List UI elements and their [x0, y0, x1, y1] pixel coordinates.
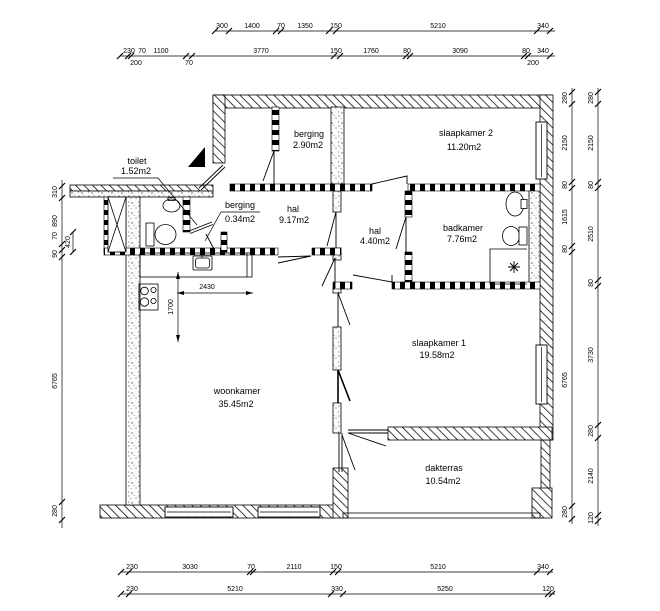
room-area-dakterras: 10.54m2 — [425, 476, 460, 486]
wall-toiletblock-top-inner — [70, 191, 213, 197]
dim-text: 6765 — [562, 372, 569, 388]
dim-text: 340 — [537, 23, 549, 30]
dim-text: 1350 — [297, 23, 313, 30]
dim-text: 80 — [403, 48, 411, 55]
dim-text: 890 — [52, 215, 59, 227]
dim-text: 230 — [126, 586, 138, 593]
door-hal — [327, 212, 336, 248]
room-area-slaapkamer1: 19.58m2 — [419, 350, 454, 360]
tap-icon — [521, 200, 527, 209]
dim-text: 5250 — [437, 586, 453, 593]
dim-text: 70 — [185, 60, 193, 67]
dim-text: 80 — [522, 48, 530, 55]
door-hal-slaapkamer1 — [353, 275, 392, 282]
wall-toilet-right — [183, 197, 190, 232]
room-label-berging: berging — [294, 129, 324, 139]
windows — [165, 122, 547, 517]
dim-text: 1615 — [562, 209, 569, 225]
room-label-dakterras: dakterras — [425, 463, 463, 473]
dim-text: 280 — [588, 92, 595, 104]
room-area-toilet: 1.52m2 — [121, 166, 151, 176]
wall-slaapkamer1-top — [392, 282, 540, 289]
dim-text: 340 — [537, 564, 549, 571]
door-hal-woonkamer — [278, 256, 311, 263]
room-label-berging-small: berging — [225, 200, 255, 210]
dim-text: 1100 — [153, 48, 168, 55]
terrace-railing — [343, 513, 540, 518]
dim-text: 280 — [562, 92, 569, 104]
dim-text: 300 — [216, 23, 228, 30]
dim-text: 1700 — [168, 299, 175, 315]
room-label-toilet: toilet — [127, 156, 147, 166]
toilet-cistern-icon — [519, 227, 527, 245]
dim-text: 3030 — [182, 564, 198, 571]
dim-text: 120 — [542, 586, 554, 593]
wall-hal-badkamer-upper — [405, 191, 412, 217]
dim-text: 2110 — [286, 564, 301, 571]
dim-text: 2430 — [199, 284, 215, 291]
dim-text: 80 — [562, 245, 569, 253]
wall-toiletblock-top-outer — [70, 185, 213, 191]
door-slaapkamer1-b — [338, 370, 350, 403]
dim-text: 150 — [330, 564, 342, 571]
door-toilet — [189, 222, 213, 234]
room-label-woonkamer: woonkamer — [213, 386, 261, 396]
dim-text: 80 — [588, 279, 595, 287]
room-area-hal2: 4.40m2 — [360, 236, 390, 246]
dim-text: 1760 — [363, 48, 379, 55]
room-area-badkamer: 7.76m2 — [447, 234, 477, 244]
dim-text: 150 — [330, 48, 342, 55]
shaft-column — [108, 197, 126, 252]
dim-text: 70 — [247, 564, 255, 571]
door-dakterras-1 — [348, 430, 388, 446]
dim-text: 150 — [330, 23, 342, 30]
wall-terrace-top — [388, 427, 552, 440]
room-label-hal2: hal — [369, 226, 381, 236]
wall-berging-left — [272, 107, 279, 151]
wall-entry-left — [213, 95, 225, 163]
floor-plan: toilet 1.52m2 berging 0.34m2 berging 2.9… — [0, 0, 660, 611]
room-area-hal: 9.17m2 — [279, 215, 309, 225]
dim-text: 3770 — [253, 48, 269, 55]
dim-text: 420 — [65, 236, 72, 248]
dim-text: 2150 — [562, 135, 569, 151]
dim-text: 5210 — [430, 23, 446, 30]
dim-text: 280 — [588, 425, 595, 437]
dim-text: 200 — [130, 60, 142, 67]
dim-text: 3090 — [452, 48, 468, 55]
wall-berging-right — [331, 107, 344, 184]
toilet-bowl-icon — [155, 225, 176, 245]
dim-text: 70 — [138, 48, 146, 55]
dim-text: 200 — [527, 60, 539, 67]
room-area-berging: 2.90m2 — [293, 140, 323, 150]
door-dakterras-2 — [339, 433, 355, 472]
room-area-woonkamer: 35.45m2 — [218, 399, 253, 409]
dim-text: 90 — [52, 250, 59, 258]
dim-text: 230 — [126, 564, 138, 571]
dim-text: 2510 — [588, 226, 595, 242]
wall-badkamer-shaft — [529, 185, 540, 286]
kitchen-counter-icon — [140, 253, 252, 277]
door-slaapkamer2 — [372, 176, 407, 184]
dim-text: 1400 — [244, 23, 260, 30]
door-slaapkamer1-a — [338, 293, 350, 327]
dim-text: 80 — [588, 181, 595, 189]
dim-text: 70 — [277, 23, 285, 30]
room-area-slaapkamer2: 11.20m2 — [447, 142, 481, 152]
dim-text: 2150 — [588, 135, 595, 151]
wall-terrace-pillar — [532, 488, 552, 518]
dim-text: 5210 — [430, 564, 446, 571]
door-berging — [263, 151, 274, 184]
room-label-slaapkamer1: slaapkamer 1 — [412, 338, 466, 348]
door-badkamer — [396, 217, 406, 252]
floor-plan-drawing: toilet 1.52m2 berging 0.34m2 berging 2.9… — [0, 0, 660, 611]
dim-text: 5210 — [227, 586, 243, 593]
room-label-badkamer: badkamer — [443, 223, 483, 233]
dim-text: 280 — [562, 506, 569, 518]
room-label-slaapkamer2: slaapkamer 2 — [439, 128, 493, 138]
wall-hal-badkamer-lower — [405, 252, 412, 282]
dim-text: 3730 — [588, 347, 595, 363]
wall-woonkamer-left — [126, 197, 140, 505]
dim-text: 230 — [123, 48, 135, 55]
room-area-berging-small: 0.34m2 — [225, 214, 255, 224]
dim-text: 120 — [588, 512, 595, 524]
dim-text: 2140 — [588, 468, 595, 484]
doors — [189, 151, 407, 472]
shower-icon — [490, 249, 527, 284]
wall-top — [213, 95, 552, 108]
dim-text: 340 — [537, 48, 549, 55]
toilet-cistern-icon — [146, 223, 154, 246]
room-label-hal: hal — [287, 204, 299, 214]
wall-terrace-left — [333, 468, 348, 518]
dim-text: 6765 — [52, 373, 59, 389]
dim-text: 80 — [562, 181, 569, 189]
dim-text: 70 — [52, 232, 59, 240]
north-arrow-icon — [188, 147, 205, 167]
dim-text: 330 — [331, 586, 343, 593]
dim-text: 280 — [52, 505, 59, 517]
toilet-bowl-icon — [503, 227, 520, 246]
dim-text: 310 — [52, 186, 59, 198]
